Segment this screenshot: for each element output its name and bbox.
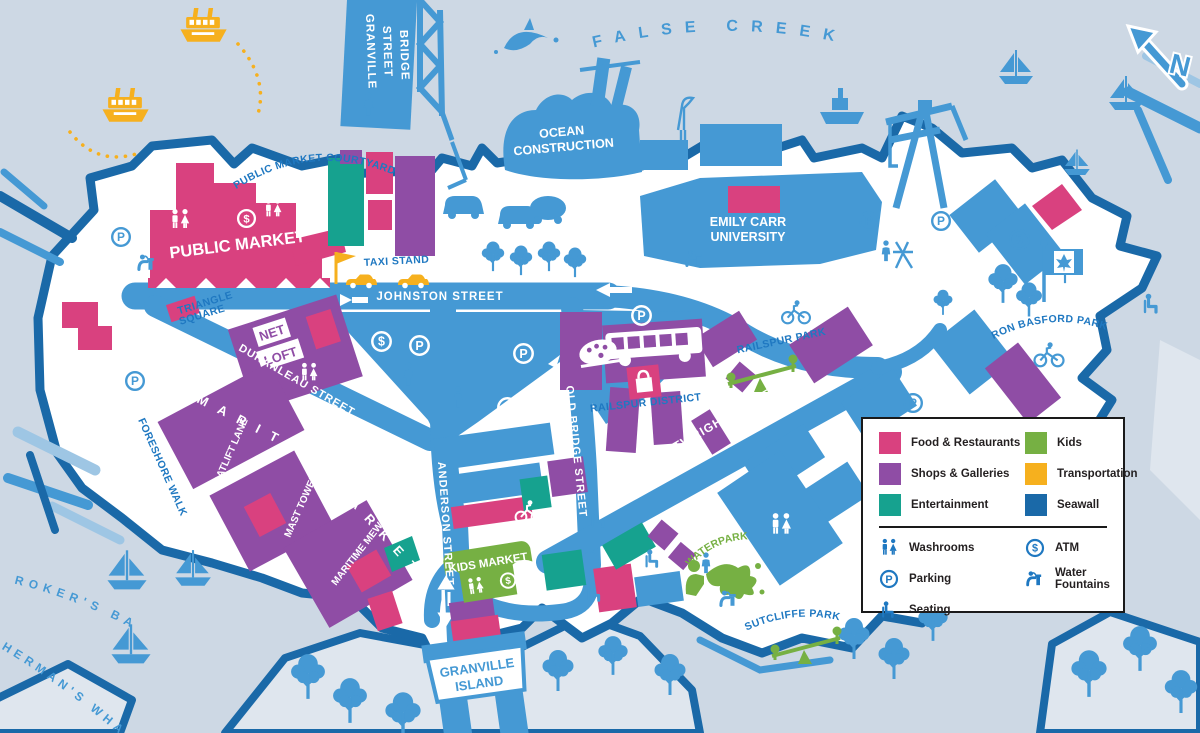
legend-facilities: Washrooms ATM Parking Water Fountains Se… — [879, 538, 1107, 620]
legend-divider — [879, 526, 1107, 528]
parking-icon — [879, 569, 899, 589]
legend-label: Kids — [1057, 437, 1082, 449]
kids-swatch — [1025, 432, 1047, 454]
legend-item-parking: Parking — [879, 567, 1025, 591]
food-swatch — [879, 432, 901, 454]
water-fountain-icon — [1025, 569, 1045, 589]
washrooms-icon — [879, 538, 899, 558]
legend-categories: Food & Restaurants Kids Shops & Gallerie… — [879, 432, 1107, 516]
emily-carr-label-2: UNIVERSITY — [710, 230, 786, 244]
map-canvas: P $ — [0, 0, 1200, 733]
granville-island-map: P $ — [0, 0, 1200, 733]
legend-label: Seating — [909, 604, 951, 616]
legend-item-water-fountains: Water Fountains — [1025, 567, 1110, 591]
seawall-swatch — [1025, 494, 1047, 516]
johnston-street-label: JOHNSTON STREET — [376, 291, 503, 303]
legend-item-seawall: Seawall — [1025, 494, 1138, 516]
transportation-swatch — [1025, 463, 1047, 485]
legend-item-entertainment: Entertainment — [879, 494, 1025, 516]
legend-label: ATM — [1055, 542, 1079, 554]
shops-swatch — [879, 463, 901, 485]
legend-item-food: Food & Restaurants — [879, 432, 1025, 454]
legend-panel: Food & Restaurants Kids Shops & Gallerie… — [861, 417, 1125, 613]
legend-label: Shops & Galleries — [911, 468, 1009, 480]
shopping-bag-icon — [626, 364, 661, 399]
legend-item-atm: ATM — [1025, 538, 1110, 558]
legend-label: Parking — [909, 573, 951, 585]
legend-item-kids: Kids — [1025, 432, 1138, 454]
entertainment-swatch — [879, 494, 901, 516]
legend-label: Water Fountains — [1055, 567, 1110, 591]
legend-label: Washrooms — [909, 542, 974, 554]
emily-carr-label-1: EMILY CARR — [710, 215, 786, 229]
legend-item-washrooms: Washrooms — [879, 538, 1025, 558]
legend-item-transportation: Transportation — [1025, 463, 1138, 485]
legend-label: Transportation — [1057, 468, 1138, 480]
seating-icon — [879, 600, 899, 620]
legend-label: Food & Restaurants — [911, 437, 1020, 449]
legend-item-shops: Shops & Galleries — [879, 463, 1025, 485]
legend-label: Entertainment — [911, 499, 988, 511]
bridge-label-line3: BRIDGE — [397, 30, 411, 81]
atm-icon — [1025, 538, 1045, 558]
bridge-label-line2: STREET — [380, 26, 394, 78]
legend-label: Seawall — [1057, 499, 1099, 511]
legend-item-seating: Seating — [879, 600, 1025, 620]
